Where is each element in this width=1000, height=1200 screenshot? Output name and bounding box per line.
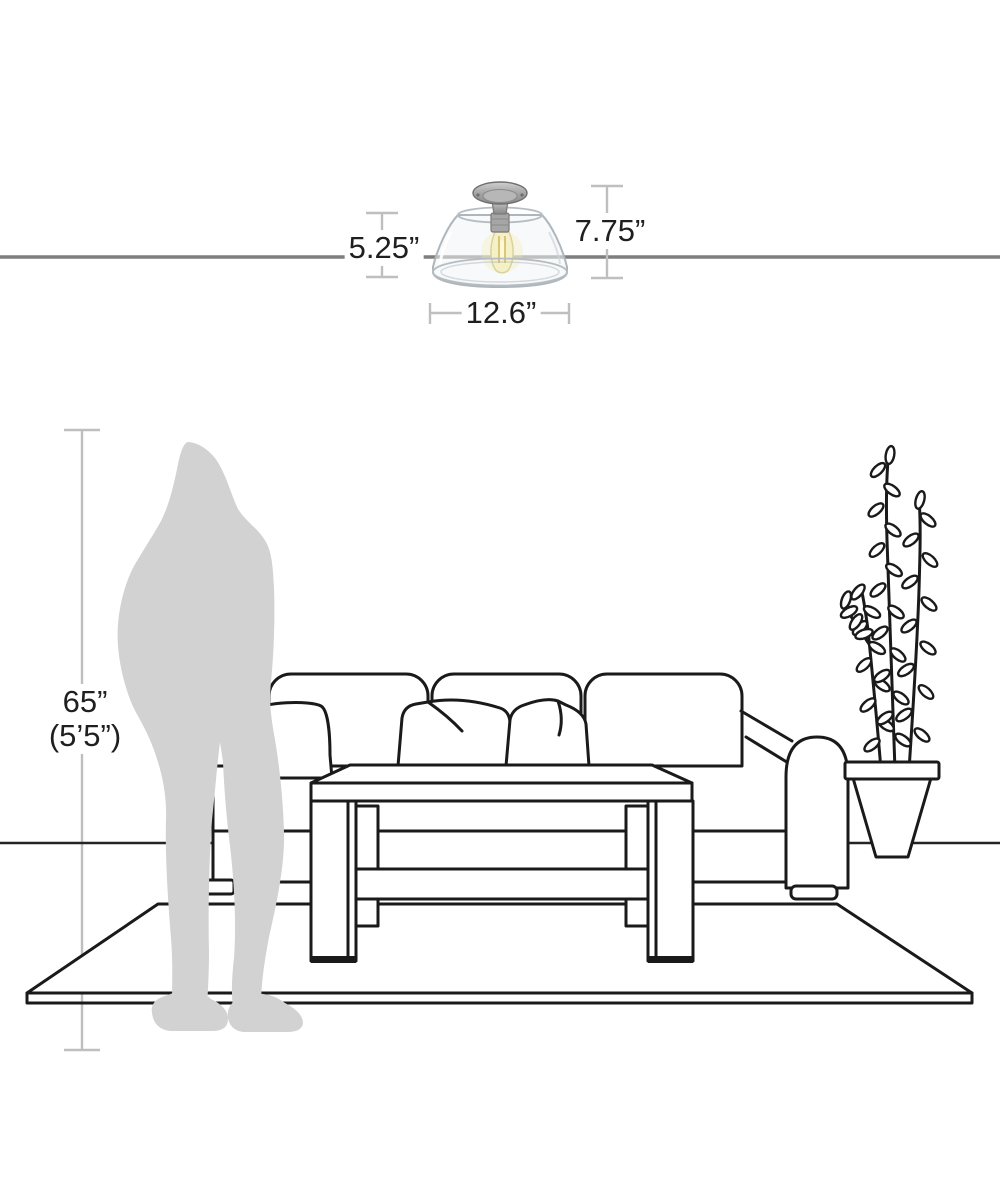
sofa-foot [791,886,837,899]
person-foot [228,994,303,1032]
ceiling-light-fixture [433,182,567,287]
person-height-inches: 65” [49,685,121,719]
plant-pot [853,778,931,857]
scene-illustration [0,0,1000,1200]
table-stretcher [346,869,658,899]
potted-plant [839,445,940,857]
person-height-label: 65” (5’5”) [45,684,125,754]
plant-pot-rim [845,762,939,779]
sofa-armrest [786,737,848,888]
width-label: 12.6” [462,295,541,331]
glass-height-label: 5.25” [345,230,424,266]
person-foot [152,991,228,1031]
dimensions-diagram: 5.25” 7.75” 12.6” 65” (5’5”) [0,0,1000,1200]
total-height-label: 7.75” [571,213,650,249]
throw-pillows [398,700,589,766]
person-height-feet: (5’5”) [49,719,121,753]
area-rug [27,904,972,1003]
table-top [311,765,692,783]
